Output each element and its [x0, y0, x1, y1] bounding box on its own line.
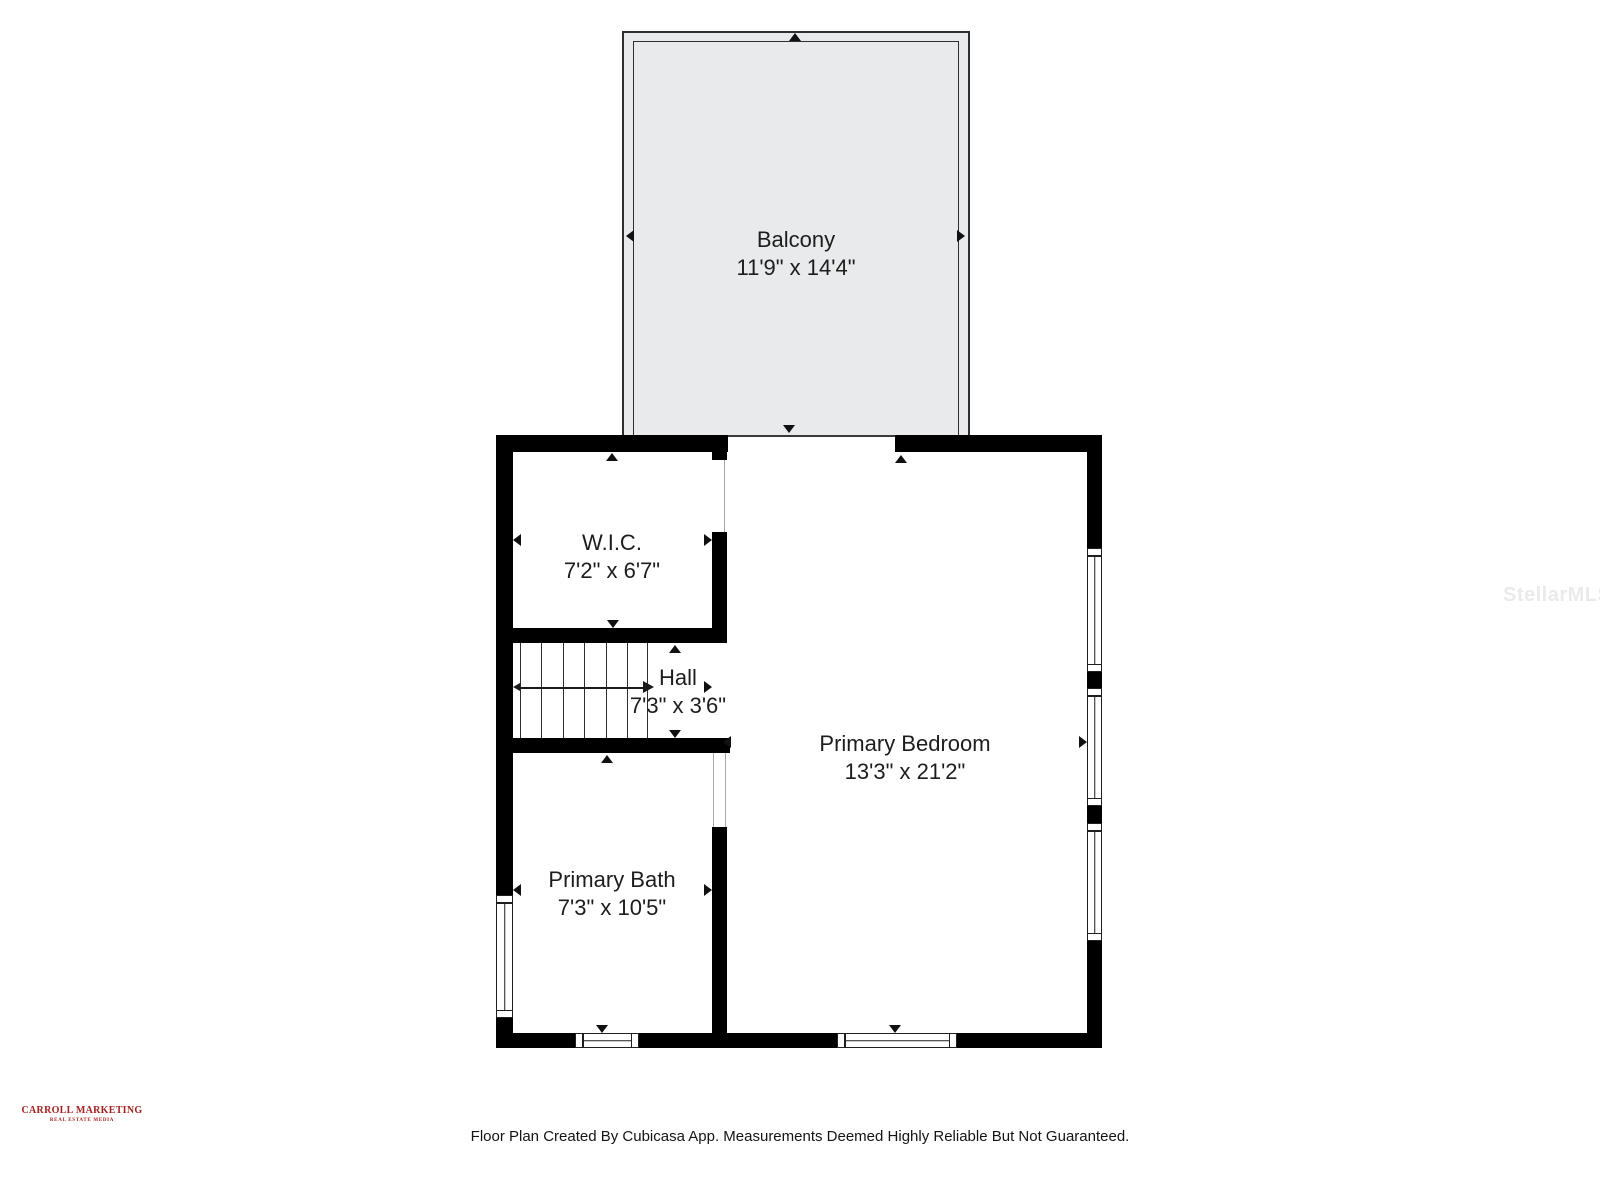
measure-arrow-balcony-down	[783, 425, 795, 433]
measure-arrow-bath-up	[601, 755, 613, 763]
measure-arrow-bath-down	[596, 1025, 608, 1033]
disclaimer-text: Floor Plan Created By Cubicasa App. Meas…	[0, 1128, 1600, 1145]
room-dimensions: 11'9" x 14'4"	[671, 254, 921, 282]
measure-arrow-bedroom-down	[889, 1025, 901, 1033]
room-name: Primary Bath	[487, 866, 737, 894]
wall-bath-bedroom-divider	[712, 827, 727, 1033]
room-dimensions: 7'3" x 10'5"	[487, 894, 737, 922]
measure-arrow-bedroom-left	[723, 736, 731, 748]
window-bedroom-right-3	[1087, 823, 1102, 941]
balcony-door-threshold	[728, 435, 895, 437]
wall-hall-bath-divider	[496, 738, 730, 753]
floorplan-canvas: Balcony 11'9" x 14'4" W.I.C. 7'2" x 6'7"…	[0, 0, 1600, 1200]
wall-left-upper	[496, 435, 513, 895]
room-name: Hall	[553, 664, 803, 692]
room-name: Primary Bedroom	[780, 730, 1030, 758]
wall-right-seg1	[1087, 435, 1102, 548]
window-bath-bottom	[575, 1033, 639, 1048]
room-dimensions: 7'2" x 6'7"	[487, 557, 737, 585]
measure-arrow-balcony-left	[626, 230, 634, 242]
measure-arrow-wic-up	[606, 453, 618, 461]
measure-arrow-hall-up	[669, 645, 681, 653]
logo-title: CARROLL MARKETING	[7, 1105, 157, 1116]
wall-top-right	[895, 435, 1102, 452]
primary-bath-label: Primary Bath 7'3" x 10'5"	[487, 866, 737, 922]
stellar-mls-watermark: StellarMLS	[1503, 584, 1600, 607]
measure-arrow-hall-down	[669, 730, 681, 738]
wall-bottom-seg3	[957, 1033, 1102, 1048]
measure-arrow-balcony-up	[789, 33, 801, 41]
wall-top-left	[496, 435, 728, 452]
room-dimensions: 13'3" x 21'2"	[780, 758, 1030, 786]
wall-right-seg4	[1087, 941, 1102, 1048]
room-name: W.I.C.	[487, 529, 737, 557]
room-name: Balcony	[671, 226, 921, 254]
balcony-label: Balcony 11'9" x 14'4"	[671, 226, 921, 282]
wic-door-jamb	[724, 460, 725, 532]
measure-arrow-balcony-right	[957, 230, 965, 242]
wall-bottom-seg1	[496, 1033, 575, 1048]
wall-interior-stub-top	[712, 452, 727, 460]
wall-bottom-seg2	[639, 1033, 837, 1048]
hall-label: Hall 7'3" x 3'6"	[553, 664, 803, 720]
measure-arrow-bedroom-right	[1079, 736, 1087, 748]
wall-wic-hall-divider	[496, 628, 727, 643]
logo-subtitle: REAL ESTATE MEDIA	[7, 1118, 157, 1123]
carroll-marketing-logo: CARROLL MARKETING REAL ESTATE MEDIA	[7, 1105, 157, 1123]
room-dimensions: 7'3" x 3'6"	[553, 692, 803, 720]
bath-door-jamb-left	[713, 753, 714, 827]
bath-door-jamb-right	[725, 753, 726, 827]
wic-label: W.I.C. 7'2" x 6'7"	[487, 529, 737, 585]
window-bedroom-right-2	[1087, 688, 1102, 806]
wall-right-seg2	[1087, 672, 1102, 688]
measure-arrow-bedroom-up	[895, 455, 907, 463]
window-bedroom-right-1	[1087, 548, 1102, 672]
measure-arrow-wic-down	[607, 620, 619, 628]
window-bedroom-bottom	[837, 1033, 957, 1048]
stair-direction-tail	[513, 683, 520, 691]
wall-right-seg3	[1087, 806, 1102, 823]
primary-bedroom-label: Primary Bedroom 13'3" x 21'2"	[780, 730, 1030, 786]
